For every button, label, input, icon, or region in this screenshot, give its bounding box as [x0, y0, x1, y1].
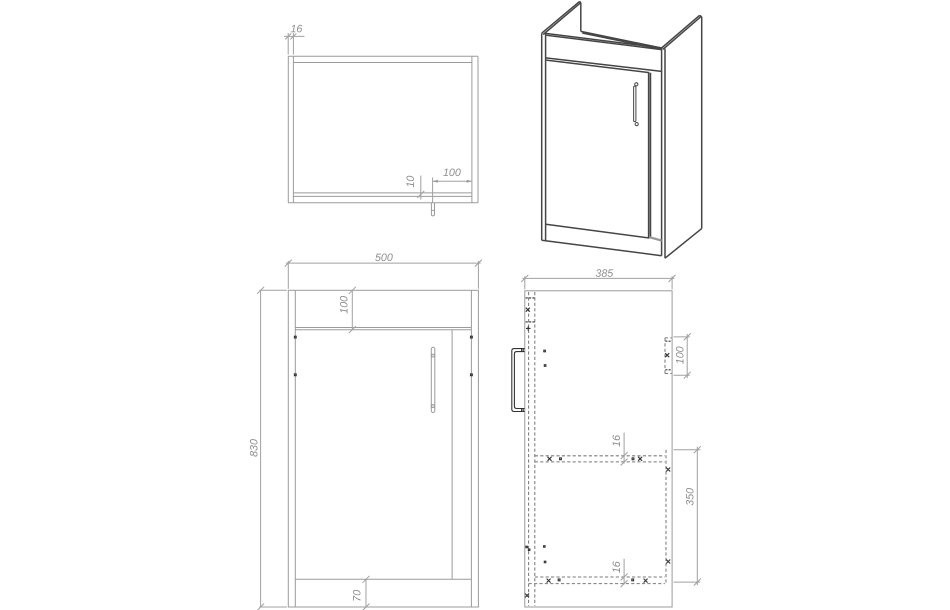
- svg-text:100: 100: [443, 167, 461, 179]
- svg-text:100: 100: [338, 296, 350, 314]
- svg-text:830: 830: [248, 439, 260, 457]
- svg-text:385: 385: [595, 268, 613, 280]
- svg-text:100: 100: [674, 346, 686, 364]
- svg-text:16: 16: [290, 23, 302, 35]
- svg-text:10: 10: [405, 176, 417, 188]
- svg-text:16: 16: [611, 561, 623, 573]
- svg-text:350: 350: [685, 488, 697, 506]
- svg-text:70: 70: [351, 590, 363, 602]
- svg-text:500: 500: [375, 252, 393, 264]
- svg-text:16: 16: [611, 435, 623, 447]
